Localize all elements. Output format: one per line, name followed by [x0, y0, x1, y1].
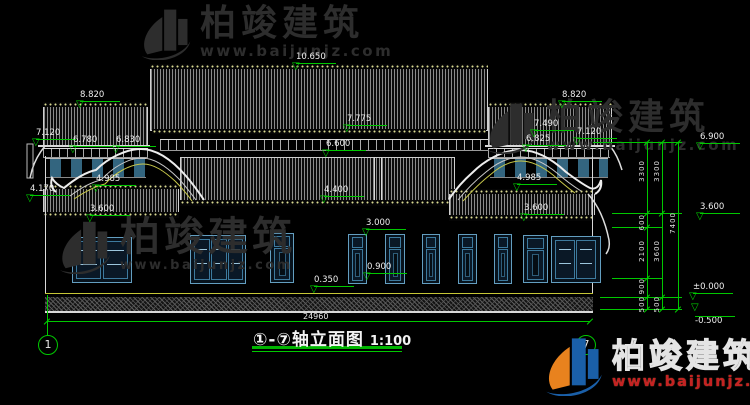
elevation-marker: 8.820▽: [80, 91, 120, 102]
door-transom: [352, 237, 363, 248]
elevation-marker: 3.000▽: [366, 219, 406, 230]
right-window-group: [551, 236, 601, 283]
elevation-marker: 6.780▽: [73, 136, 113, 147]
vertical-dim-value: 7400: [669, 212, 677, 234]
elevation-line: [73, 146, 113, 147]
elevation-value: 0.900: [367, 263, 407, 272]
elevation-marker: 6.900▽: [700, 133, 740, 144]
baijun-logo-icon: [138, 4, 194, 60]
door-leaf: [527, 250, 544, 280]
elevation-value: -0.500: [695, 317, 735, 326]
elevation-line: [700, 213, 740, 214]
elevation-marker: 7.775▽: [347, 115, 387, 126]
elevation-value: 8.820: [562, 91, 602, 100]
elevation-line: [524, 214, 564, 215]
title-name: 轴立面图: [292, 330, 364, 350]
elevation-marker: 7.120▽: [36, 129, 76, 140]
baijun-logo-icon: [56, 216, 114, 274]
watermark-text: 柏竣建筑 www.baijunjz.com: [120, 216, 296, 274]
drawing-title: ①-⑦轴立面图1:100: [253, 325, 411, 350]
elevation-line: [90, 215, 130, 216]
vertical-dim-value: 3300: [653, 160, 661, 182]
watermark-url: www.baijunjz.com: [120, 258, 296, 274]
elevation-line: [116, 146, 156, 147]
elevation-line: [562, 101, 602, 102]
elevation-value: 7.120: [36, 129, 76, 138]
elevation-triangle-icon: ▽: [573, 138, 581, 146]
elevation-line: [314, 286, 354, 287]
elevation-line: [517, 184, 557, 185]
watermark-brand: 柏竣建筑: [120, 216, 296, 258]
window-pane: [576, 240, 596, 279]
vertical-dim-value: 500: [653, 296, 661, 312]
title-scale: 1:100: [370, 334, 411, 349]
elevation-line: [700, 143, 740, 144]
title-underline-thin: [252, 351, 402, 352]
elevation-value: 6.780: [73, 136, 113, 145]
elevation-marker: 8.820▽: [562, 91, 602, 102]
elevation-value: 3.600: [90, 205, 130, 214]
overall-dimension-line: [47, 321, 590, 322]
vertical-dim-value: 600: [638, 214, 646, 230]
elevation-marker: 4.400▽: [324, 186, 364, 197]
elevation-value: 6.600: [326, 140, 366, 149]
elevation-triangle-icon: ▽: [292, 63, 300, 71]
elevation-value: 0.350: [314, 276, 354, 285]
door-transom: [462, 237, 473, 248]
elevation-value: 10.650: [296, 53, 336, 62]
elevation-triangle-icon: ▽: [558, 101, 566, 109]
elevation-line: [296, 63, 336, 64]
door-transom: [426, 237, 436, 248]
elevation-value: 6.825: [526, 135, 566, 144]
elevation-marker: 6.825▽: [526, 135, 566, 146]
vertical-dim-value: 500: [638, 296, 646, 312]
elevation-triangle-icon: ▽: [363, 273, 371, 281]
elevation-triangle-icon: ▽: [112, 146, 120, 154]
elevation-value: 6.830: [116, 136, 156, 145]
elevation-value: 4.985: [96, 175, 136, 184]
elevation-value: 4.170: [30, 185, 70, 194]
elevation-triangle-icon: ▽: [362, 229, 370, 237]
watermark-url: www.baijunjz.com: [612, 374, 750, 390]
elevation-line: [693, 293, 733, 294]
door-leaf: [462, 249, 473, 281]
watermark-mid-left: 柏竣建筑 www.baijunjz.com: [56, 216, 296, 274]
elevation-triangle-icon: ▽: [69, 146, 77, 154]
elevation-line: [526, 145, 566, 146]
elevation-marker: ±0.000▽: [693, 283, 733, 294]
elevation-value: ±0.000: [693, 283, 733, 292]
elevation-line: [577, 138, 617, 139]
elevation-value: 6.900: [700, 133, 740, 142]
door-transom: [389, 237, 401, 248]
elevation-line: [695, 316, 735, 317]
elevation-triangle-icon: ▽: [26, 195, 34, 203]
watermark-text: 柏竣建筑 www.baijunjz.com: [200, 5, 393, 59]
elevation-marker: 10.650▽: [296, 53, 336, 64]
overall-width-value: 24960: [303, 312, 328, 321]
elevation-line: [367, 273, 407, 274]
elevation-line: [30, 195, 70, 196]
elevation-marker: 6.600▽: [326, 140, 366, 151]
door: [458, 234, 477, 284]
window-pane: [555, 240, 575, 279]
door-transom: [527, 238, 544, 249]
dimension-extension-line: [612, 227, 662, 228]
elevation-marker: 3.600▽: [90, 205, 130, 216]
left-eave-post: [27, 144, 33, 178]
elevation-marker: 0.350▽: [314, 276, 354, 287]
elevation-value: 3.000: [366, 219, 406, 228]
elevation-line: [80, 101, 120, 102]
door: [385, 234, 405, 284]
elevation-line: [324, 196, 364, 197]
elevation-triangle-icon: ▽: [513, 184, 521, 192]
elevation-value: 8.820: [80, 91, 120, 100]
dimension-extension-line: [593, 142, 682, 143]
elevation-triangle-icon: ▽: [691, 304, 699, 312]
watermark-top: 柏竣建筑 www.baijunjz.com: [138, 4, 393, 60]
elevation-triangle-icon: ▽: [322, 150, 330, 158]
title-axis-range: ①-⑦: [253, 330, 292, 350]
elevation-line: [366, 229, 406, 230]
elevation-value: 4.400: [324, 186, 364, 195]
elevation-marker: 7.120▽: [577, 128, 617, 139]
watermark-bottom-right: 柏竣建筑 www.baijunjz.com: [542, 332, 750, 396]
elevation-line: [534, 130, 574, 131]
elevation-triangle-icon: ▽: [689, 293, 697, 301]
vertical-dim-value: 2100: [638, 240, 646, 262]
vertical-dim-value: 900: [638, 278, 646, 294]
vertical-dim-value: 3600: [653, 240, 661, 262]
elevation-triangle-icon: ▽: [32, 139, 40, 147]
cad-elevation-drawing: 柏竣建筑 www.baijunjz.com 柏竣建筑 www.baijunjz.…: [0, 0, 750, 405]
elevation-line: [36, 139, 76, 140]
door-leaf: [498, 249, 508, 281]
elevation-triangle-icon: ▽: [520, 214, 528, 222]
elevation-marker: 6.830▽: [116, 136, 156, 147]
elevation-triangle-icon: ▽: [310, 286, 318, 294]
elevation-value: 4.985: [517, 174, 557, 183]
elevation-marker: 4.985▽: [96, 175, 136, 186]
door: [523, 235, 548, 283]
elevation-line: [96, 185, 136, 186]
elevation-line: [347, 125, 387, 126]
elevation-value: 7.775: [347, 115, 387, 124]
elevation-marker: 7.490▽: [534, 120, 574, 131]
elevation-marker: ▽-0.500: [695, 305, 735, 326]
elevation-value: 7.490: [534, 120, 574, 129]
elevation-triangle-icon: ▽: [696, 213, 704, 221]
vertical-dim-value: 3300: [638, 160, 646, 182]
elevation-triangle-icon: ▽: [522, 145, 530, 153]
elevation-value: 3.600: [524, 204, 564, 213]
dimension-chain-line: [662, 142, 663, 310]
elevation-value: 7.120: [577, 128, 617, 137]
elevation-line: [326, 150, 366, 151]
watermark-text: 柏竣建筑 www.baijunjz.com: [612, 338, 750, 390]
elevation-marker: 4.985▽: [517, 174, 557, 185]
watermark-brand: 柏竣建筑: [612, 338, 750, 374]
axis-line-1: [47, 295, 48, 335]
door: [422, 234, 440, 284]
elevation-triangle-icon: ▽: [92, 185, 100, 193]
baijun-logo-color-icon: [542, 332, 606, 396]
watermark-brand: 柏竣建筑: [200, 5, 393, 43]
elevation-marker: 4.170▽: [30, 185, 70, 196]
door-leaf: [426, 249, 436, 281]
elevation-marker: 3.600▽: [700, 203, 740, 214]
elevation-value: 3.600: [700, 203, 740, 212]
elevation-triangle-icon: ▽: [696, 143, 704, 151]
elevation-triangle-icon: ▽: [343, 125, 351, 133]
elevation-triangle-icon: ▽: [86, 215, 94, 223]
axis-bubble-1: 1: [38, 335, 58, 355]
door-transom: [498, 237, 508, 248]
door: [494, 234, 512, 284]
elevation-marker: 0.900▽: [367, 263, 407, 274]
dimension-extension-line: [612, 278, 662, 279]
elevation-marker: 3.600▽: [524, 204, 564, 215]
dimension-chain-line: [678, 142, 679, 310]
elevation-triangle-icon: ▽: [76, 101, 84, 109]
elevation-triangle-icon: ▽: [320, 196, 328, 204]
